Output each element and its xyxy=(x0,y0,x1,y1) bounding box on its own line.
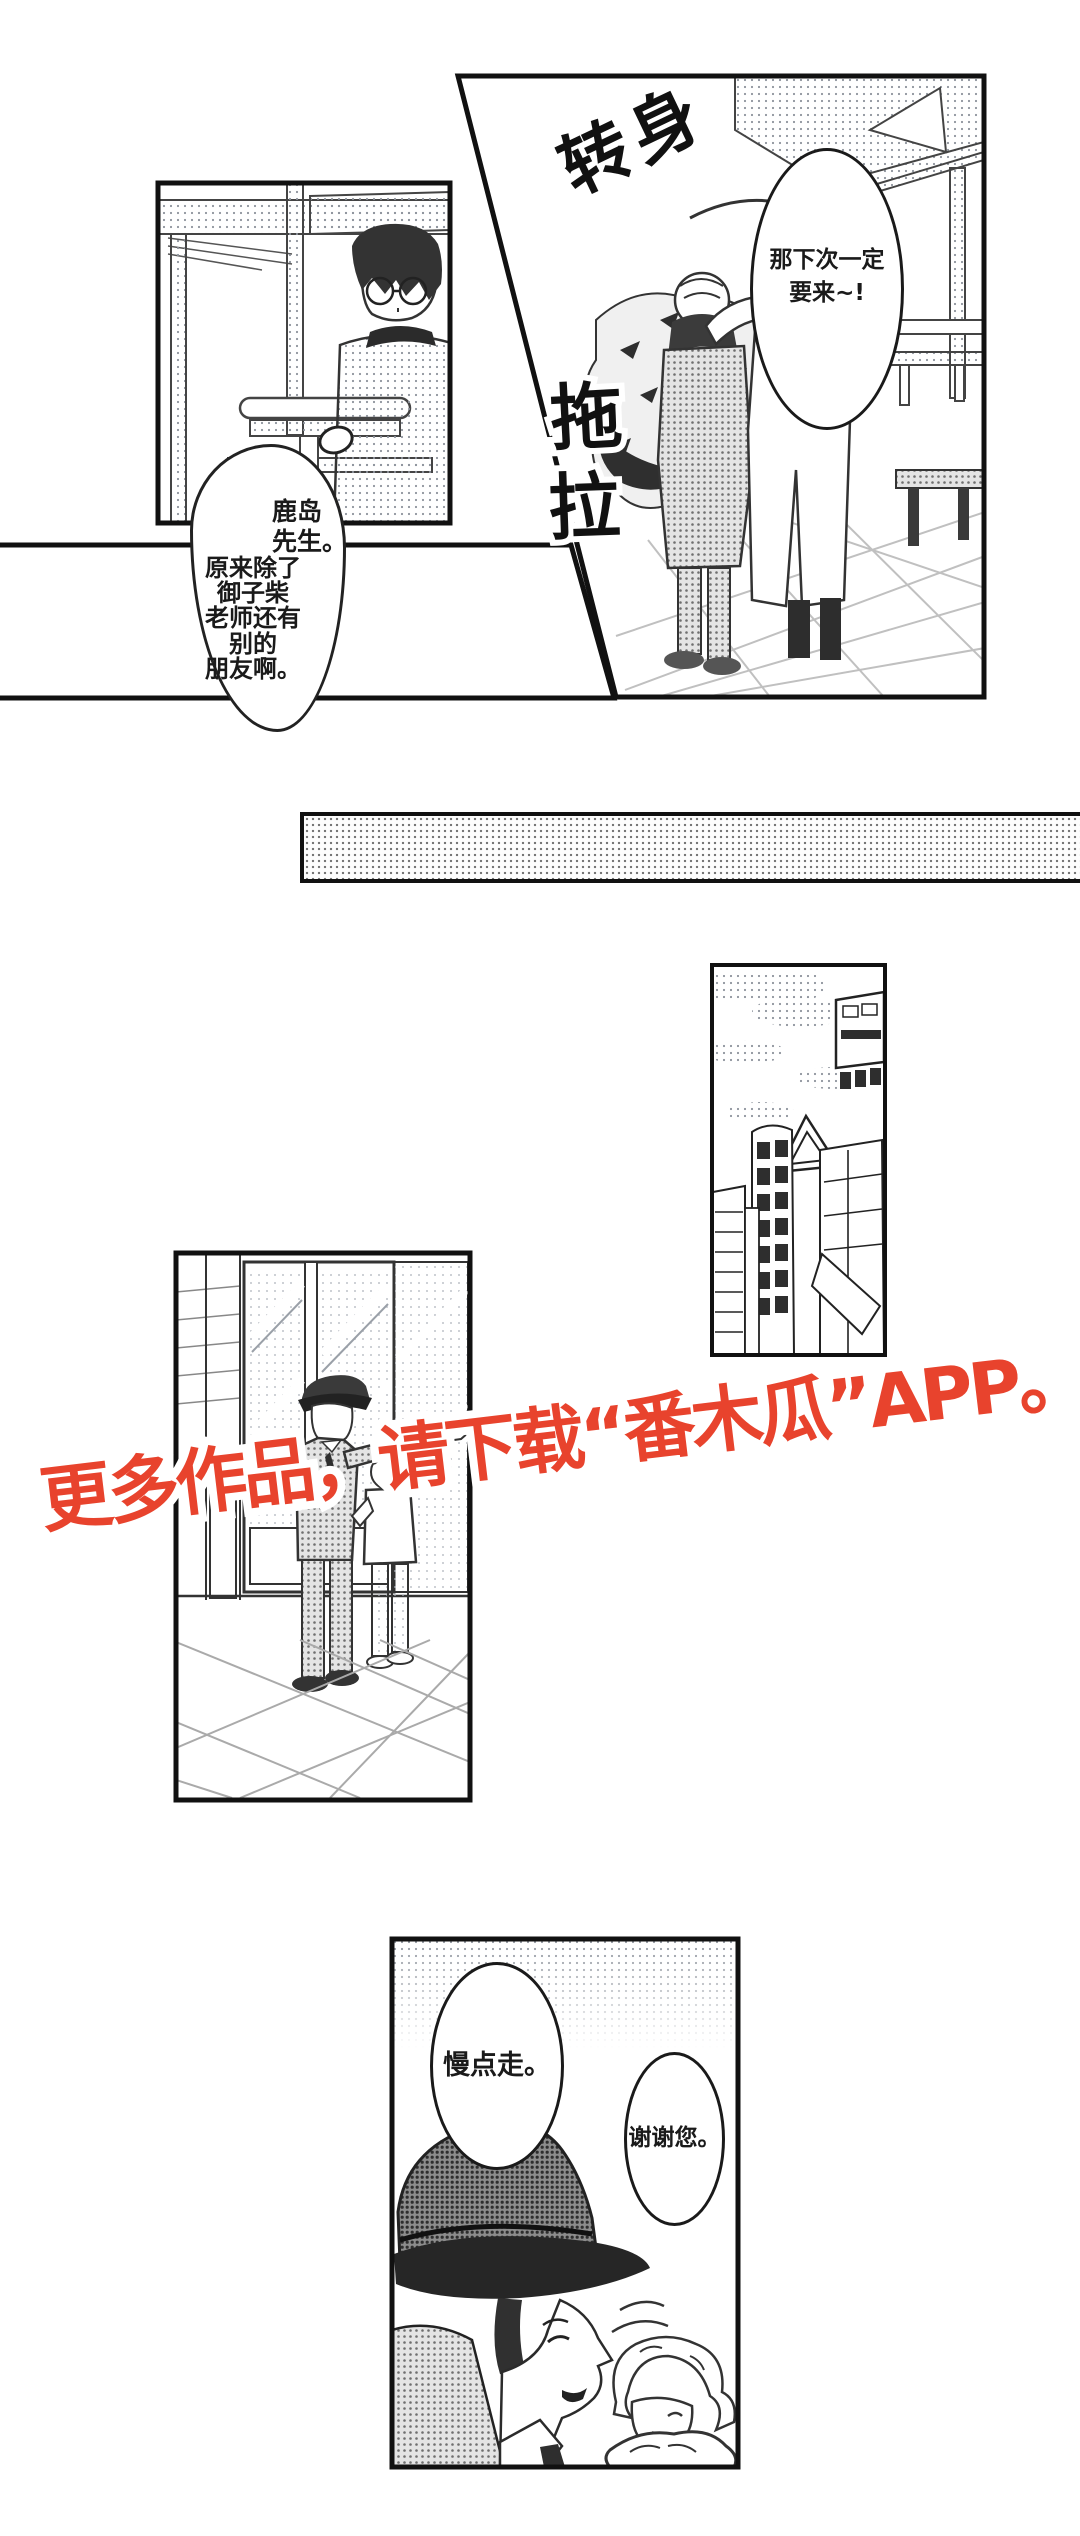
thought-text-name: 鹿岛 先生。 xyxy=(272,497,347,556)
speech-bubble-thank-you: 谢谢您。 xyxy=(624,2052,725,2226)
thought-text-body: 原来除了 御子柴 老师还有 别的 朋友啊。 xyxy=(197,556,309,682)
speech-text-walk-slowly: 慢点走。 xyxy=(443,2046,551,2085)
speech-text-thank-you: 谢谢您。 xyxy=(629,2122,721,2155)
manga-page: 那下次一定 要来~! 转身 转身 拖 拖 拉 拉 鹿岛 先生。 原来除了 御子柴… xyxy=(0,0,1080,2536)
halftone-divider-bar xyxy=(300,812,1080,883)
panel-directions xyxy=(176,1253,470,1800)
speech-text-next-time: 那下次一定 要来~! xyxy=(770,244,885,311)
speech-bubble-next-time: 那下次一定 要来~! xyxy=(750,148,904,430)
speech-bubble-walk-slowly: 慢点走。 xyxy=(430,1962,564,2170)
panel-city xyxy=(705,965,885,1355)
sfx-drag-char2: 拉 拉 xyxy=(546,447,622,554)
manga-artwork xyxy=(0,0,1080,2536)
